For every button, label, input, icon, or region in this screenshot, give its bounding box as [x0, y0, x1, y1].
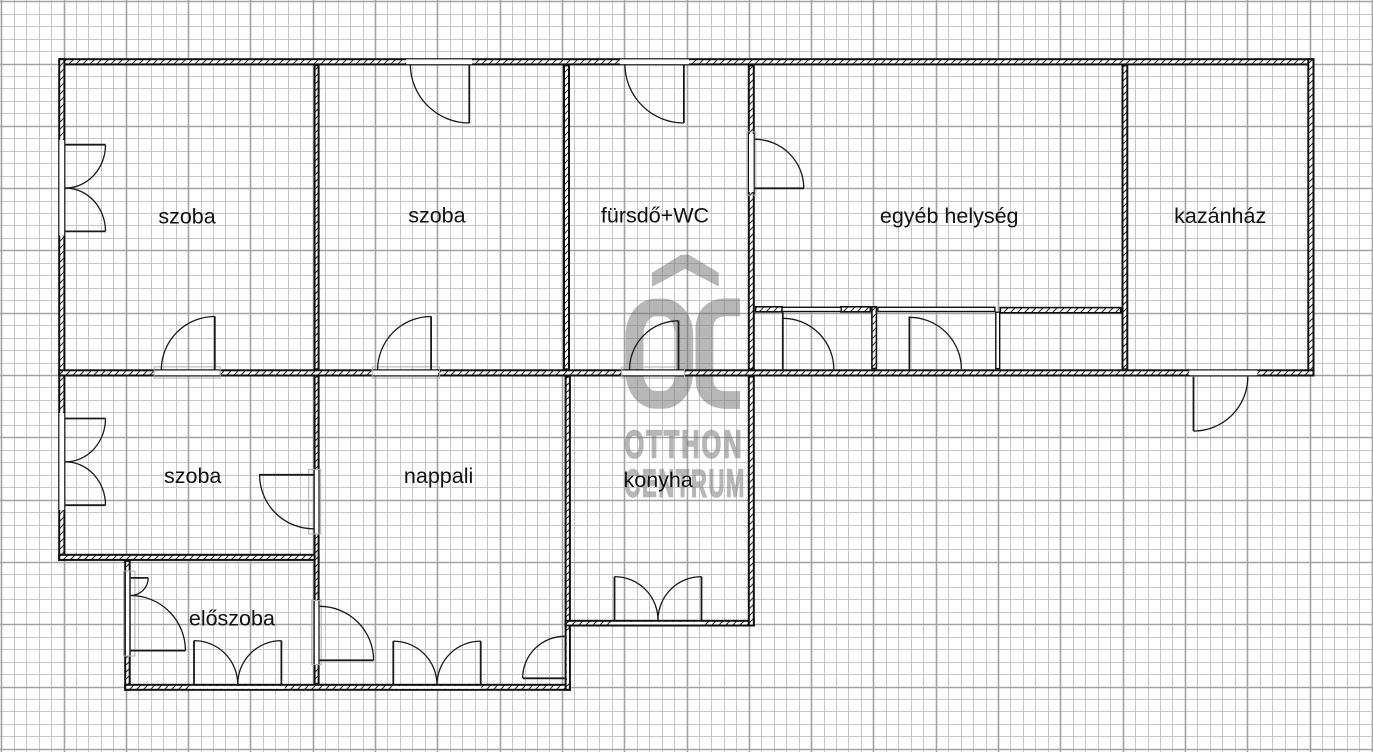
svg-text:szoba: szoba [164, 464, 221, 488]
svg-text:szoba: szoba [408, 204, 465, 228]
svg-text:előszoba: előszoba [189, 607, 275, 631]
svg-text:OTTHON: OTTHON [625, 422, 744, 466]
svg-text:szoba: szoba [158, 205, 215, 229]
svg-text:kazánház: kazánház [1174, 204, 1266, 228]
svg-text:konyha: konyha [624, 468, 693, 492]
svg-text:nappali: nappali [404, 464, 473, 488]
svg-text:egyéb helység: egyéb helység [880, 204, 1019, 228]
svg-text:fürsdő+WC: fürsdő+WC [601, 204, 709, 228]
